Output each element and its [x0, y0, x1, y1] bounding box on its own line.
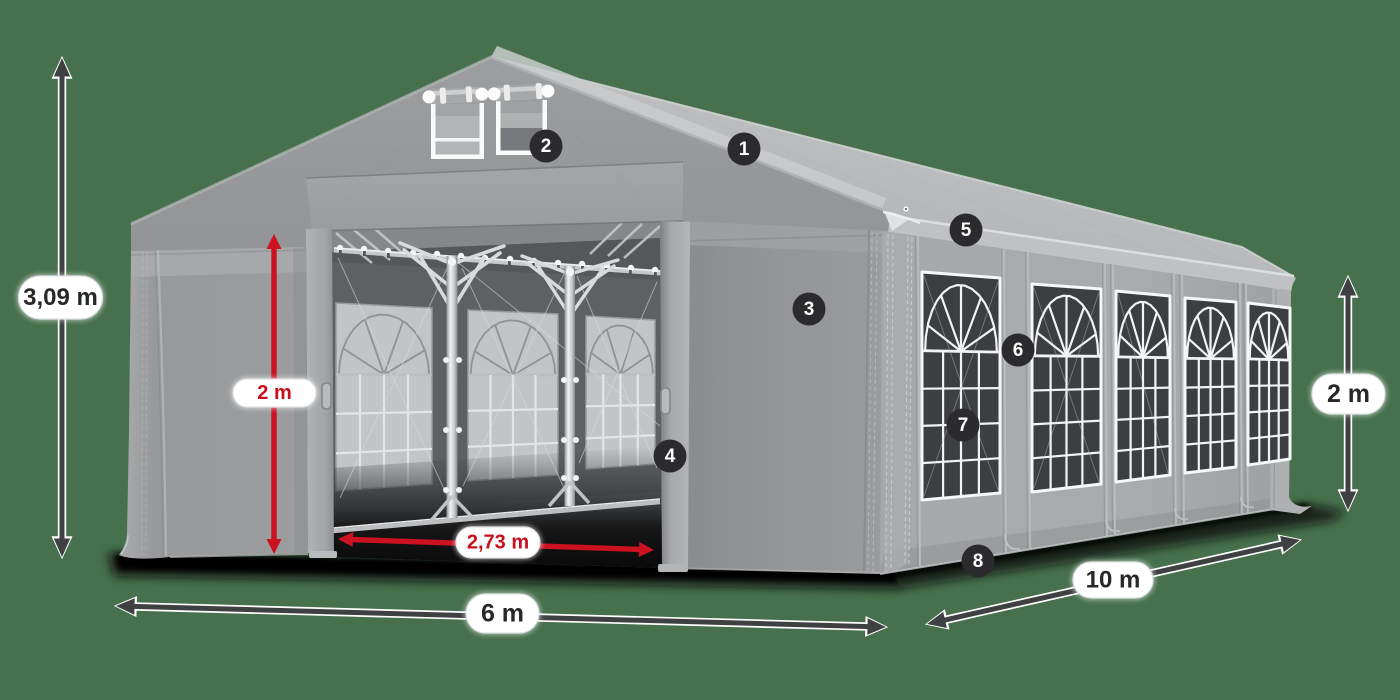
- svg-text:1: 1: [739, 139, 750, 160]
- svg-text:2 m: 2 m: [1327, 380, 1370, 408]
- svg-text:2: 2: [541, 136, 552, 157]
- svg-text:4: 4: [665, 446, 676, 467]
- svg-text:8: 8: [973, 551, 984, 572]
- svg-text:6 m: 6 m: [481, 600, 524, 628]
- svg-text:7: 7: [958, 415, 969, 436]
- svg-text:3: 3: [804, 299, 815, 320]
- svg-text:3,09 m: 3,09 m: [23, 284, 98, 311]
- svg-text:6: 6: [1013, 340, 1024, 361]
- svg-text:10 m: 10 m: [1086, 567, 1141, 594]
- svg-text:2 m: 2 m: [257, 382, 291, 404]
- svg-text:2,73 m: 2,73 m: [467, 532, 529, 554]
- svg-text:5: 5: [961, 220, 972, 241]
